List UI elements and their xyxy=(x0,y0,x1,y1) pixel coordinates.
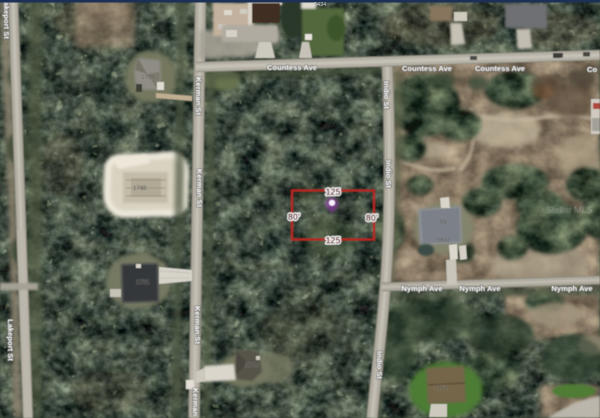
svg-text:80': 80' xyxy=(288,212,300,222)
svg-text:Lakeport St: Lakeport St xyxy=(2,0,11,39)
svg-text:5434: 5434 xyxy=(314,2,326,8)
svg-text:55: 55 xyxy=(440,220,447,226)
svg-text:1748: 1748 xyxy=(245,363,259,369)
svg-text:1752: 1752 xyxy=(434,386,448,392)
svg-text:Countess Ave: Countess Ave xyxy=(267,63,317,72)
svg-text:Kerman St: Kerman St xyxy=(195,169,204,207)
svg-text:Co: Co xyxy=(587,65,597,74)
svg-text:1731: 1731 xyxy=(136,280,150,286)
svg-text:Nymph Ave: Nymph Ave xyxy=(401,284,442,293)
svg-text:125: 125 xyxy=(325,236,340,246)
svg-text:Stellar MLS: Stellar MLS xyxy=(546,205,593,215)
svg-text:80': 80' xyxy=(366,213,378,223)
svg-text:5512: 5512 xyxy=(437,238,451,244)
svg-text:Lakeport St: Lakeport St xyxy=(6,319,15,361)
svg-text:1709: 1709 xyxy=(141,75,155,81)
svg-text:Countess Ave: Countess Ave xyxy=(402,64,452,73)
svg-text:Nymph Ave: Nymph Ave xyxy=(459,284,500,293)
svg-text:Kerman: Kerman xyxy=(191,388,200,417)
svg-text:Countess Ave: Countess Ave xyxy=(475,64,525,73)
svg-text:Nymph Ave: Nymph Ave xyxy=(551,284,592,293)
svg-text:1748: 1748 xyxy=(133,186,147,192)
svg-text:Indio St: Indio St xyxy=(382,81,391,109)
svg-text:125: 125 xyxy=(325,187,340,197)
svg-text:Indio St: Indio St xyxy=(384,160,393,188)
svg-text:Kerman St: Kerman St xyxy=(194,77,203,115)
svg-text:Kerman St: Kerman St xyxy=(193,306,202,344)
svg-text:Indio St: Indio St xyxy=(375,351,384,379)
